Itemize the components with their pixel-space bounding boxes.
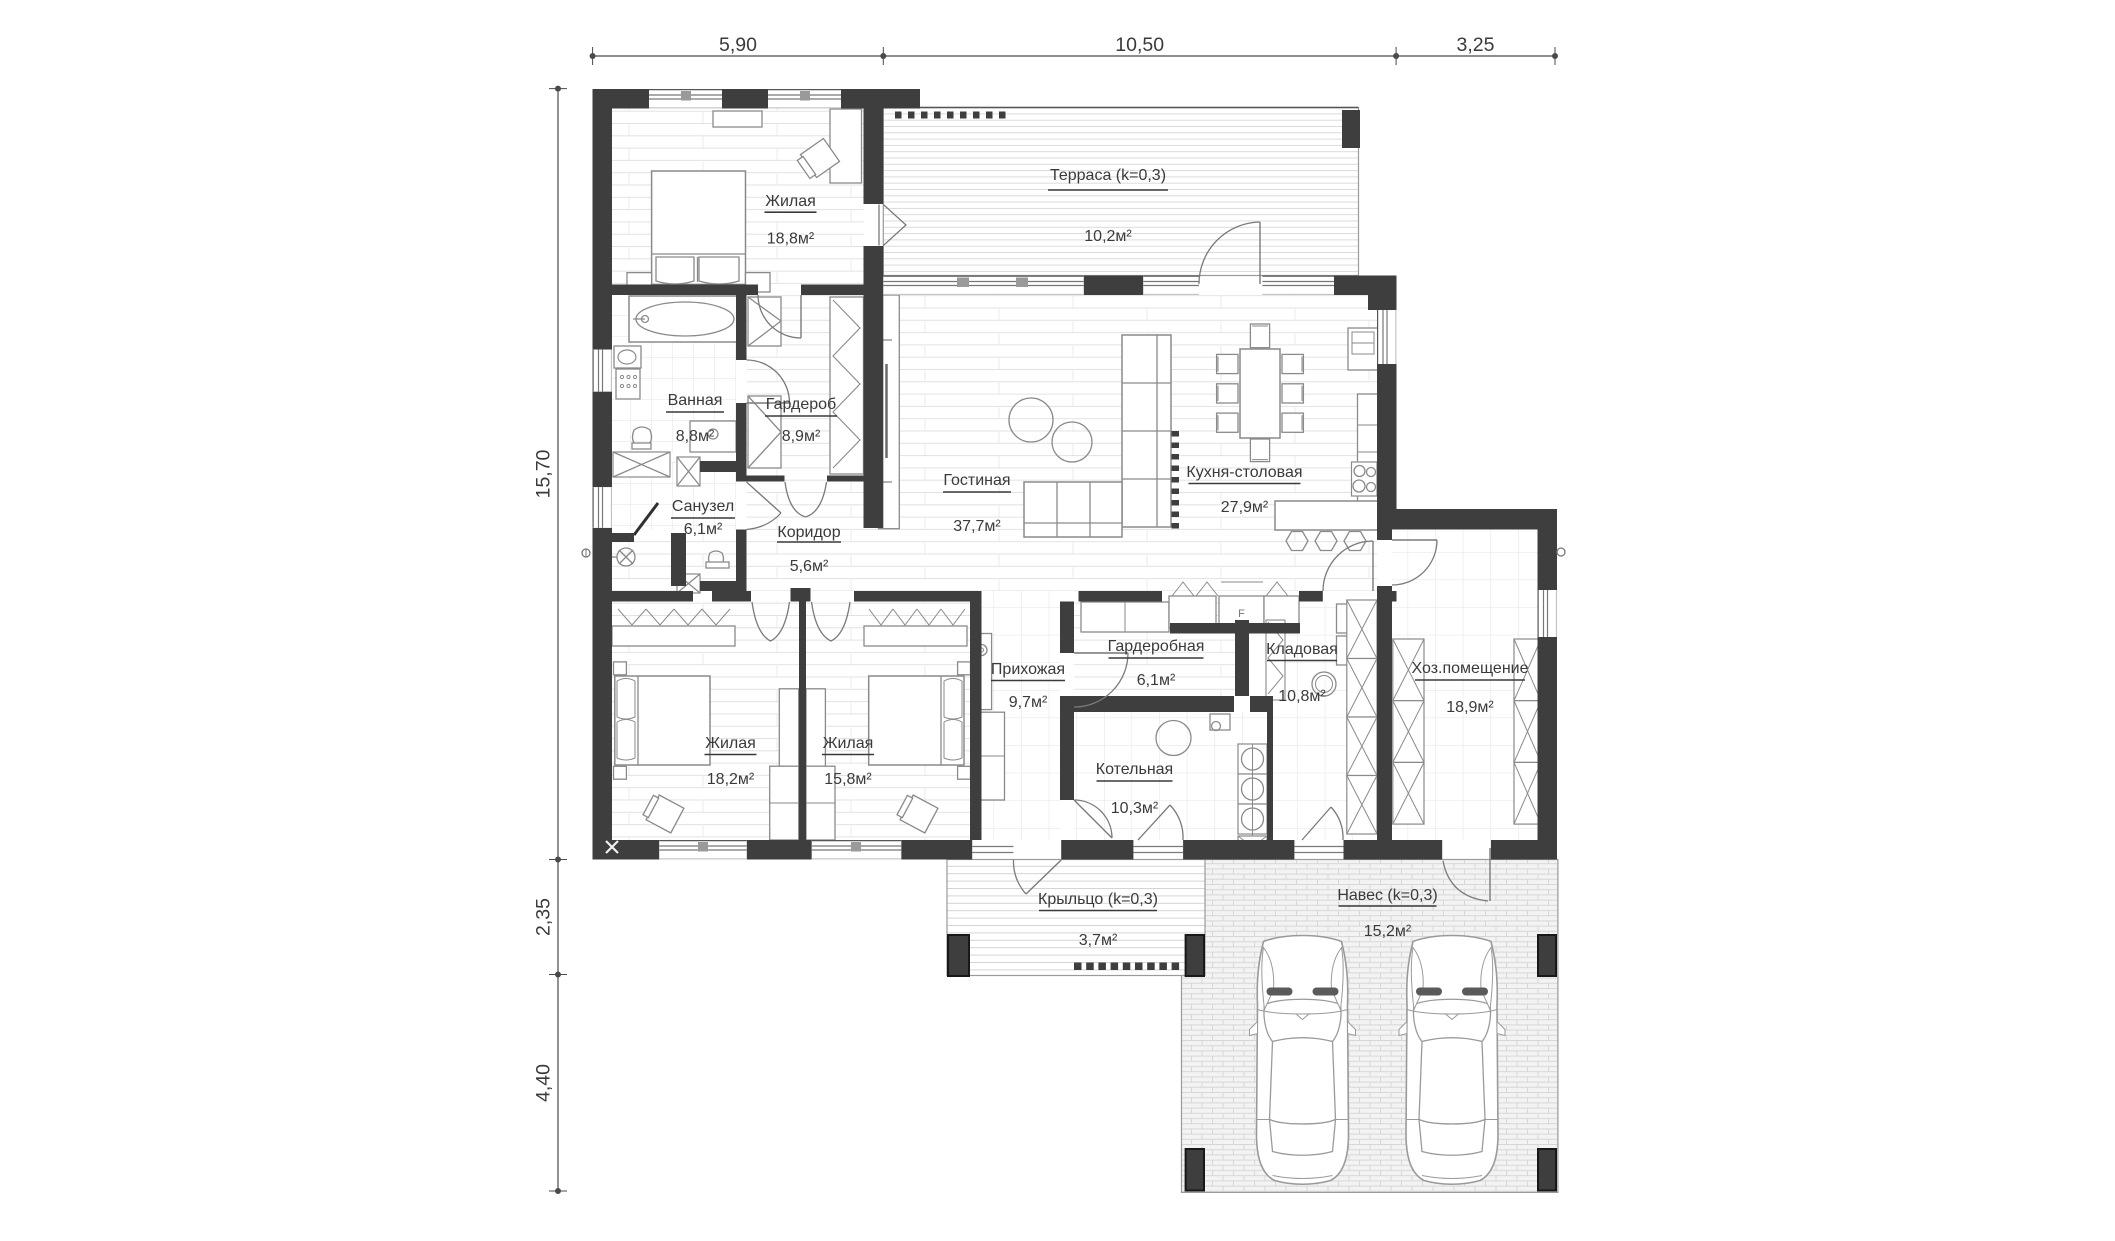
svg-text:18,9м²: 18,9м² — [1446, 699, 1494, 716]
svg-text:6,1м²: 6,1м² — [684, 521, 723, 538]
svg-text:Жилая: Жилая — [705, 735, 756, 752]
svg-text:Гостиная: Гостиная — [943, 472, 1010, 489]
svg-text:15,70: 15,70 — [533, 449, 555, 498]
svg-text:Жилая: Жилая — [765, 193, 816, 210]
svg-text:18,8м²: 18,8м² — [767, 231, 815, 248]
svg-text:9,7м²: 9,7м² — [1009, 694, 1048, 711]
svg-text:F: F — [1238, 608, 1245, 620]
svg-text:Кладовая: Кладовая — [1266, 641, 1338, 658]
svg-text:Жилая: Жилая — [823, 735, 874, 752]
svg-text:10,50: 10,50 — [1115, 34, 1164, 56]
svg-text:10,8м²: 10,8м² — [1278, 688, 1326, 705]
svg-text:10,3м²: 10,3м² — [1111, 800, 1159, 817]
svg-text:Ванная: Ванная — [668, 392, 723, 409]
svg-text:8,9м²: 8,9м² — [782, 428, 821, 445]
svg-text:Прихожая: Прихожая — [991, 661, 1065, 678]
svg-text:Хоз.помещение: Хоз.помещение — [1411, 660, 1528, 677]
svg-text:Крыльцо (k=0,3): Крыльцо (k=0,3) — [1038, 891, 1158, 908]
svg-text:10,2м²: 10,2м² — [1084, 228, 1132, 245]
svg-text:6,1м²: 6,1м² — [1137, 672, 1176, 689]
svg-text:5,6м²: 5,6м² — [790, 558, 829, 575]
svg-text:Терраса (k=0,3): Терраса (k=0,3) — [1050, 167, 1166, 184]
svg-text:Гардеробная: Гардеробная — [1108, 638, 1205, 655]
svg-text:2,35: 2,35 — [533, 898, 555, 936]
svg-text:8,8м²: 8,8м² — [676, 428, 715, 445]
svg-text:Котельная: Котельная — [1096, 761, 1173, 778]
svg-text:15,2м²: 15,2м² — [1364, 923, 1412, 940]
svg-text:18,2м²: 18,2м² — [707, 771, 755, 788]
svg-text:3,25: 3,25 — [1457, 34, 1495, 56]
svg-text:Кухня-столовая: Кухня-столовая — [1186, 464, 1302, 481]
svg-text:3,7м²: 3,7м² — [1079, 932, 1118, 949]
svg-text:15,8м²: 15,8м² — [824, 771, 872, 788]
svg-text:Коридор: Коридор — [777, 524, 840, 541]
svg-text:Навес (k=0,3): Навес (k=0,3) — [1337, 887, 1437, 904]
svg-text:27,9м²: 27,9м² — [1221, 499, 1269, 516]
svg-text:Гардероб: Гардероб — [766, 396, 836, 413]
svg-text:37,7м²: 37,7м² — [953, 518, 1001, 535]
svg-text:4,40: 4,40 — [533, 1064, 555, 1102]
svg-text:5,90: 5,90 — [719, 34, 757, 56]
svg-text:Санузел: Санузел — [672, 498, 734, 515]
